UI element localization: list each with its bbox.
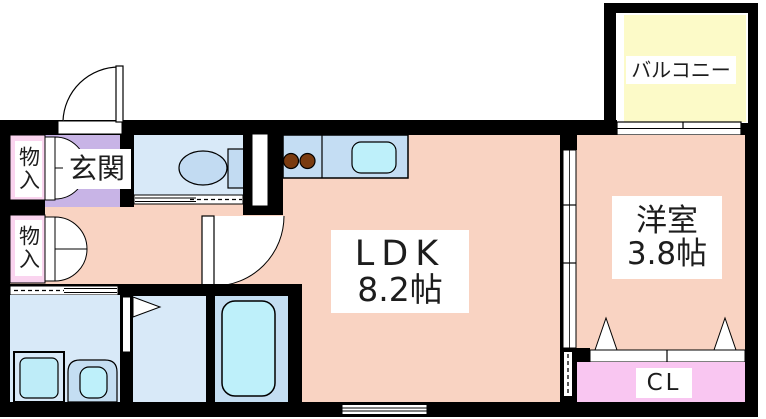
- wall: [206, 296, 215, 402]
- kitchen-sink-icon: [352, 142, 396, 173]
- entrance-label: 玄関: [63, 149, 131, 189]
- ldk-size: 8.2帖: [357, 273, 442, 308]
- ldk-name: LDK: [355, 236, 445, 273]
- kitchen-counter: [283, 135, 408, 178]
- storage-lower-label: 物入: [15, 220, 42, 276]
- sliding-doors: [560, 135, 577, 402]
- western-room-name: 洋室: [636, 205, 698, 238]
- floor-plan: 物入 玄関 物入 LDK 8.2帖 洋室 3.8帖 バルコニー CL: [0, 0, 766, 419]
- western-room-size: 3.8帖: [627, 238, 707, 271]
- wall: [288, 284, 302, 402]
- toilet-sliding-door: [134, 195, 243, 204]
- western-room-label: 洋室 3.8帖: [612, 196, 722, 279]
- toilet-icon: [179, 149, 246, 188]
- balcony-window: [617, 122, 741, 135]
- washing-machine-icon: [14, 352, 64, 402]
- closet-label: CL: [636, 368, 692, 398]
- ldk-label: LDK 8.2帖: [331, 230, 469, 313]
- storage-upper-label: 物入: [15, 141, 42, 197]
- pipe-space: [243, 128, 283, 215]
- washroom-sliding-door: [10, 286, 118, 295]
- bathtub-icon: [222, 301, 275, 396]
- wall: [10, 200, 45, 215]
- entrance-door: [58, 66, 123, 134]
- vanity-sink-icon: [68, 360, 117, 402]
- ldk-window: [342, 405, 427, 415]
- balcony-label: バルコニー: [626, 56, 736, 84]
